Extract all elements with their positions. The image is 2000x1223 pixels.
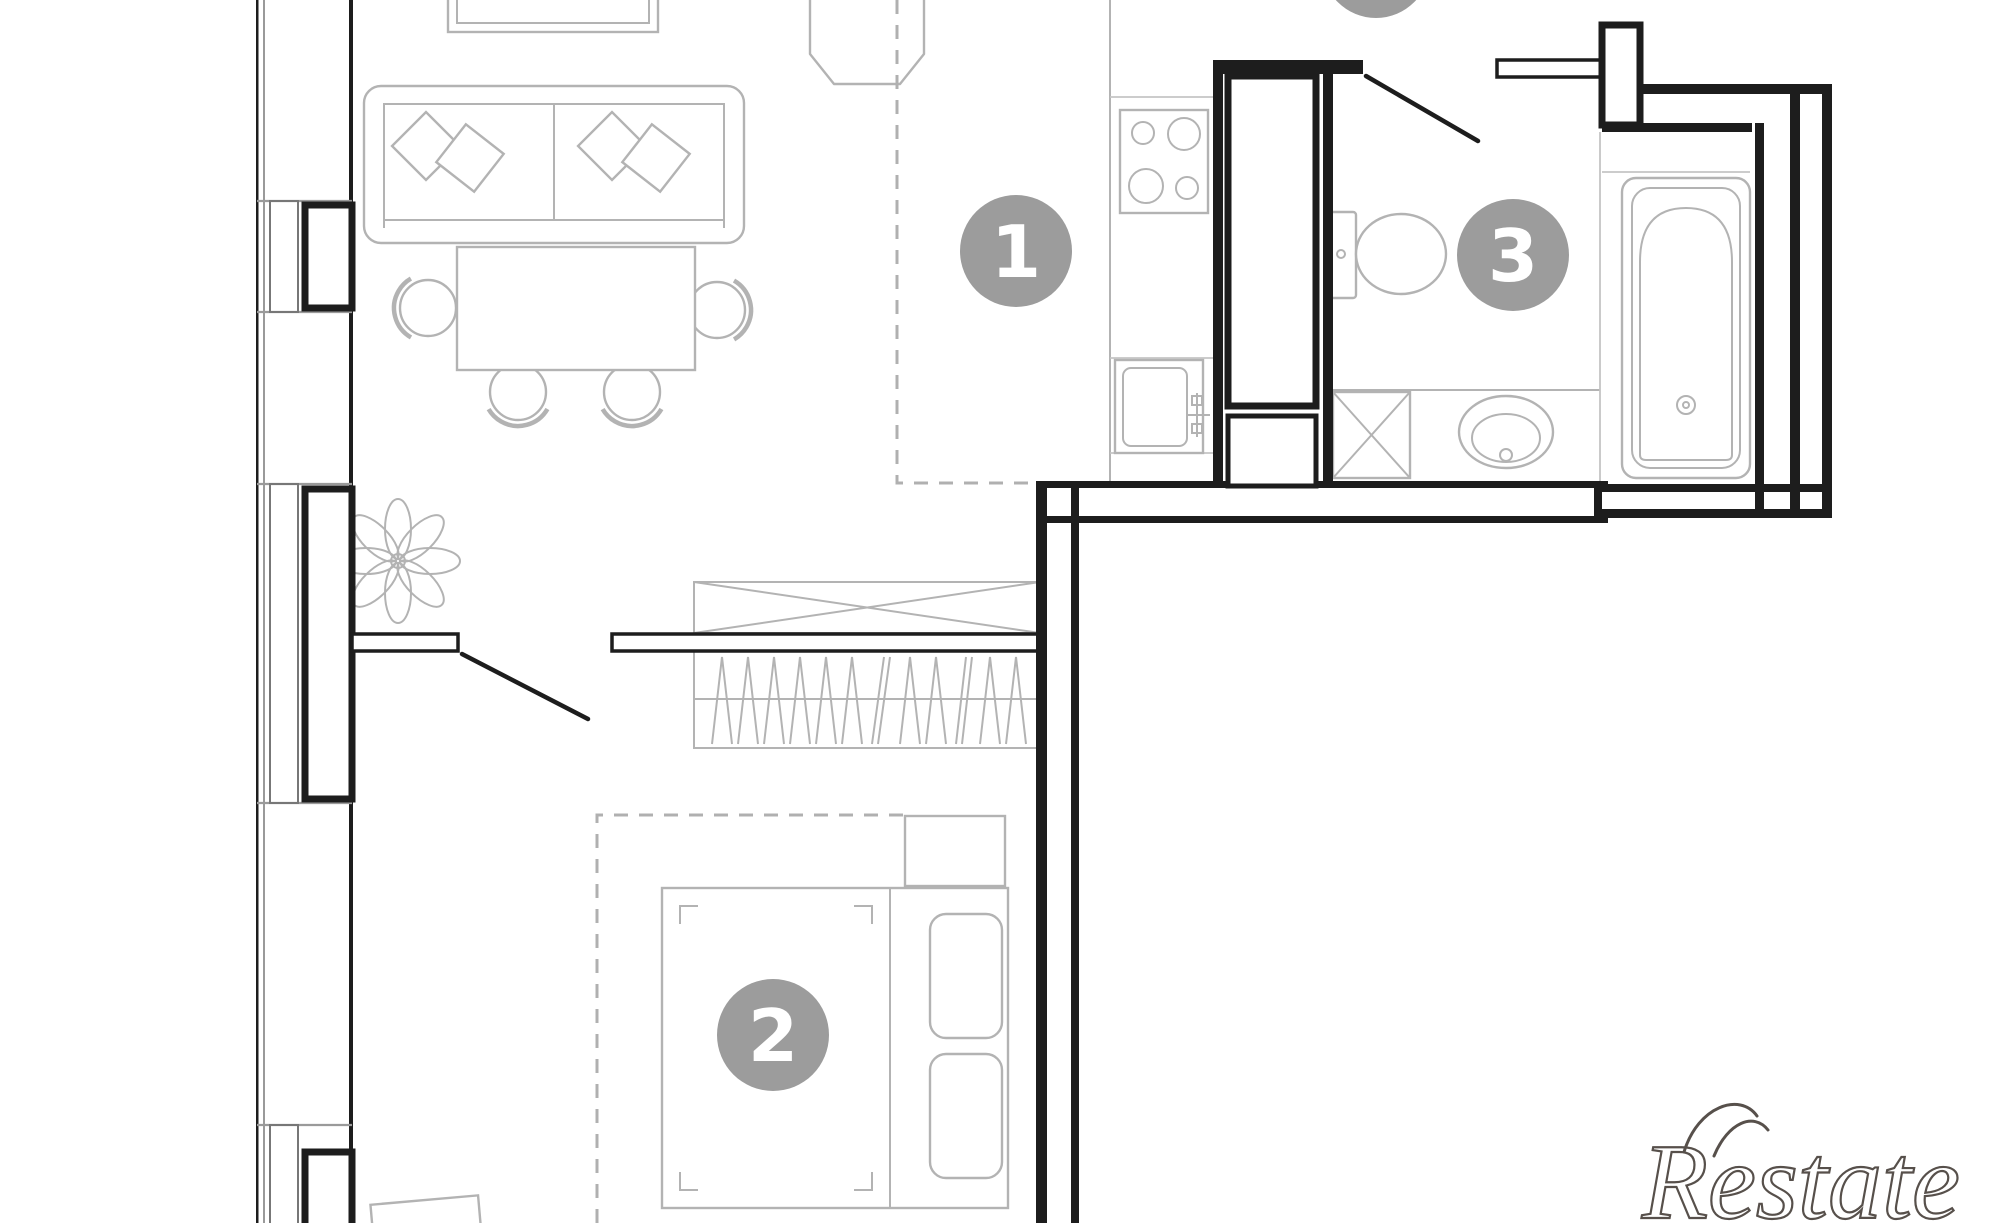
low-cabinet: [1228, 416, 1316, 486]
bedroom-right-wall: [1036, 481, 1079, 1223]
south-wall-band: [1036, 481, 1830, 523]
dining-table: [457, 247, 695, 370]
room-badge-3: 3: [1457, 199, 1569, 311]
toilet: [1326, 212, 1446, 298]
sofa: [364, 86, 744, 243]
floor-plan: 1 2 3 Restate: [0, 0, 2000, 1223]
bathtub: [1600, 132, 1750, 481]
watermark: Restate: [1641, 1104, 1960, 1223]
window-3: [270, 1125, 352, 1223]
bathroom-sink: [1459, 396, 1553, 468]
nightstand: [905, 816, 1005, 886]
room-badge-cut: [1322, 0, 1430, 18]
badge-3-label: 3: [1488, 214, 1538, 298]
stove-burners: [1120, 110, 1208, 213]
room-badge-1: 1: [960, 195, 1072, 307]
double-bed: [662, 888, 1008, 1208]
window-1: [270, 201, 352, 312]
room-badge-2: 2: [717, 979, 829, 1091]
wall-stub: [1602, 25, 1640, 125]
tub-top-wall: [1602, 123, 1752, 132]
bedroom-bench: [370, 1195, 481, 1223]
tub-right-wall: [1755, 123, 1764, 518]
washing-machine: [1333, 392, 1410, 478]
storage-closet: [694, 582, 1040, 633]
kitchen-sink: [1115, 360, 1210, 453]
badge-1-label: 1: [991, 210, 1041, 294]
bathroom-door-swing: [1366, 76, 1478, 141]
facade-line: [256, 0, 259, 1223]
kitchen-counter: [1110, 0, 1213, 481]
tall-cabinet: [1228, 76, 1316, 406]
tv-stand: [448, 0, 658, 32]
bedroom-door-swing: [462, 654, 588, 719]
bedroom-door-leaf: [352, 634, 458, 651]
wardrobe-hangers: [694, 650, 1040, 748]
window-2: [270, 484, 352, 803]
hall-wall-bar: [1497, 60, 1602, 77]
bedroom-wall-door: [352, 634, 1040, 719]
badge-2-label: 2: [748, 994, 798, 1078]
left-wall-windows: [256, 0, 353, 1223]
armchair: [810, 0, 924, 84]
